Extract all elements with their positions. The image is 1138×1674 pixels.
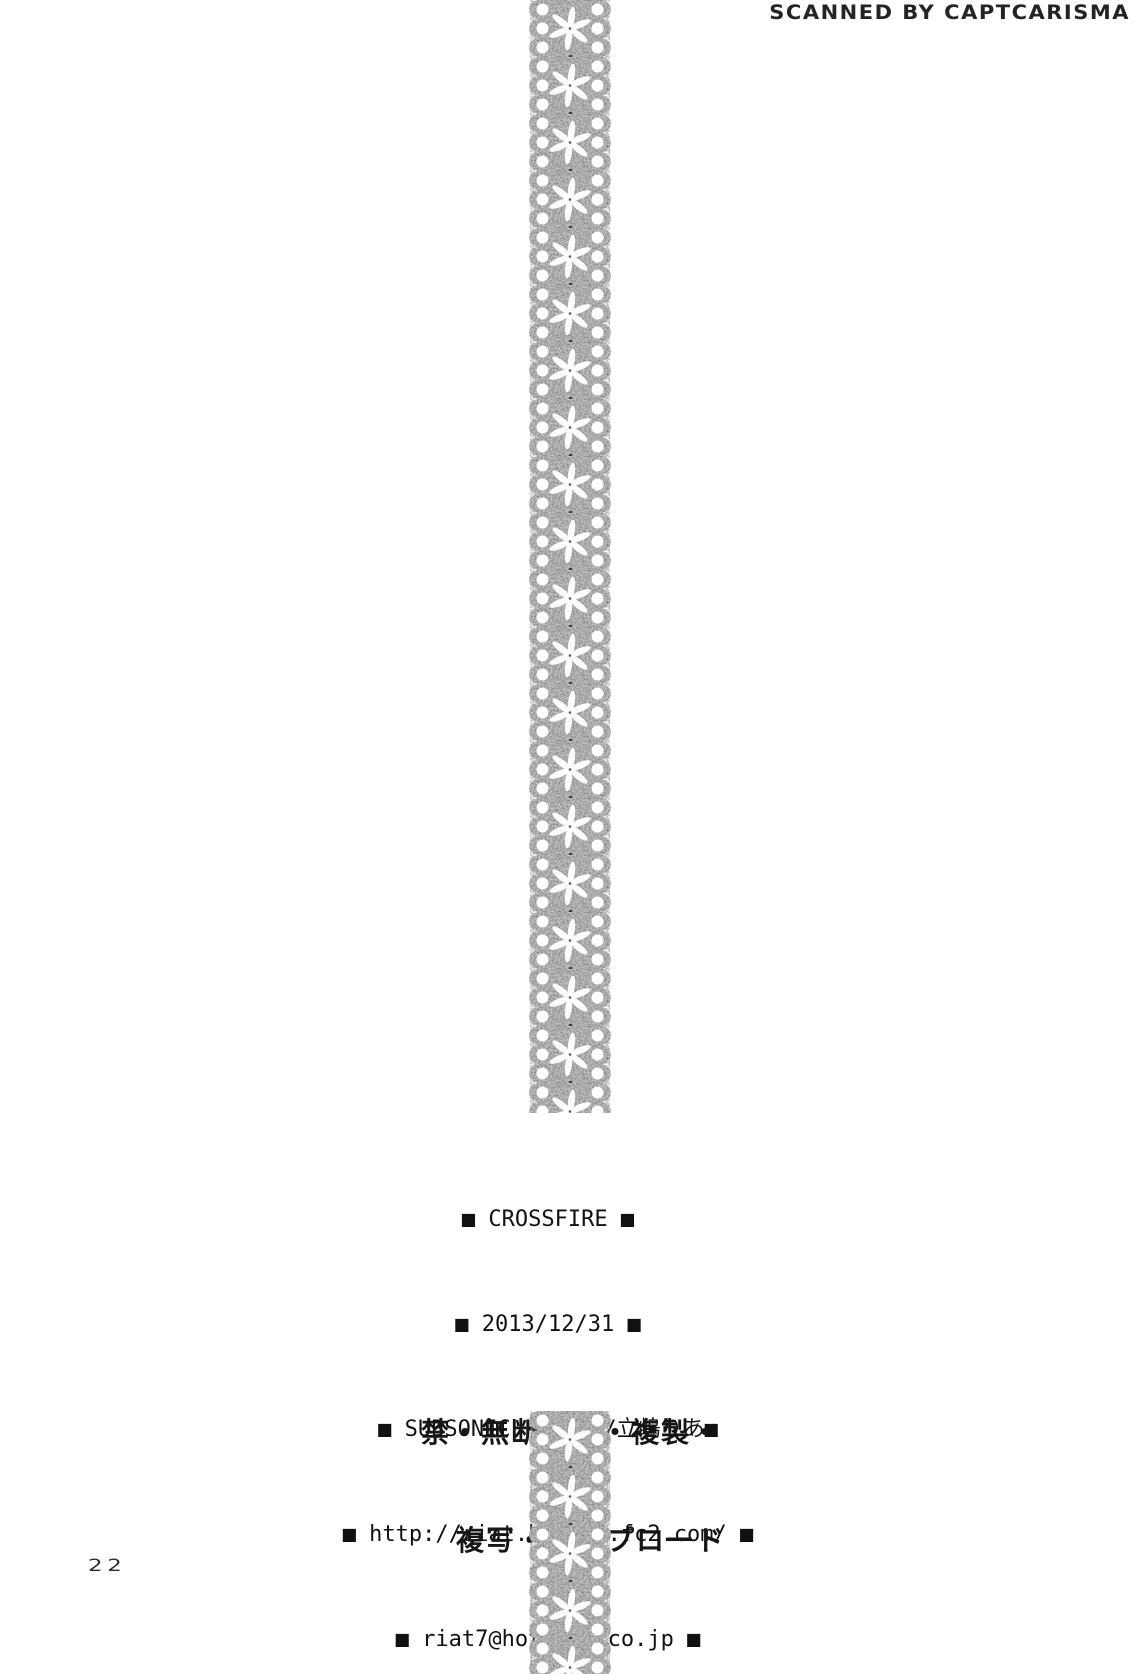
lace-ribbon-top-icon bbox=[529, 0, 611, 1113]
scanned-doujin-page: SCANNED BY CAPTCARISMA bbox=[0, 0, 1138, 1674]
scanner-credit-watermark: SCANNED BY CAPTCARISMA bbox=[769, 1, 1130, 24]
release-date: ■ 2013/12/31 ■ bbox=[0, 1307, 1117, 1342]
doujin-title: ■ CROSSFIRE ■ bbox=[0, 1202, 1117, 1237]
lace-ribbon-bottom-icon bbox=[529, 1411, 611, 1674]
page-number: 22 bbox=[88, 1555, 126, 1575]
